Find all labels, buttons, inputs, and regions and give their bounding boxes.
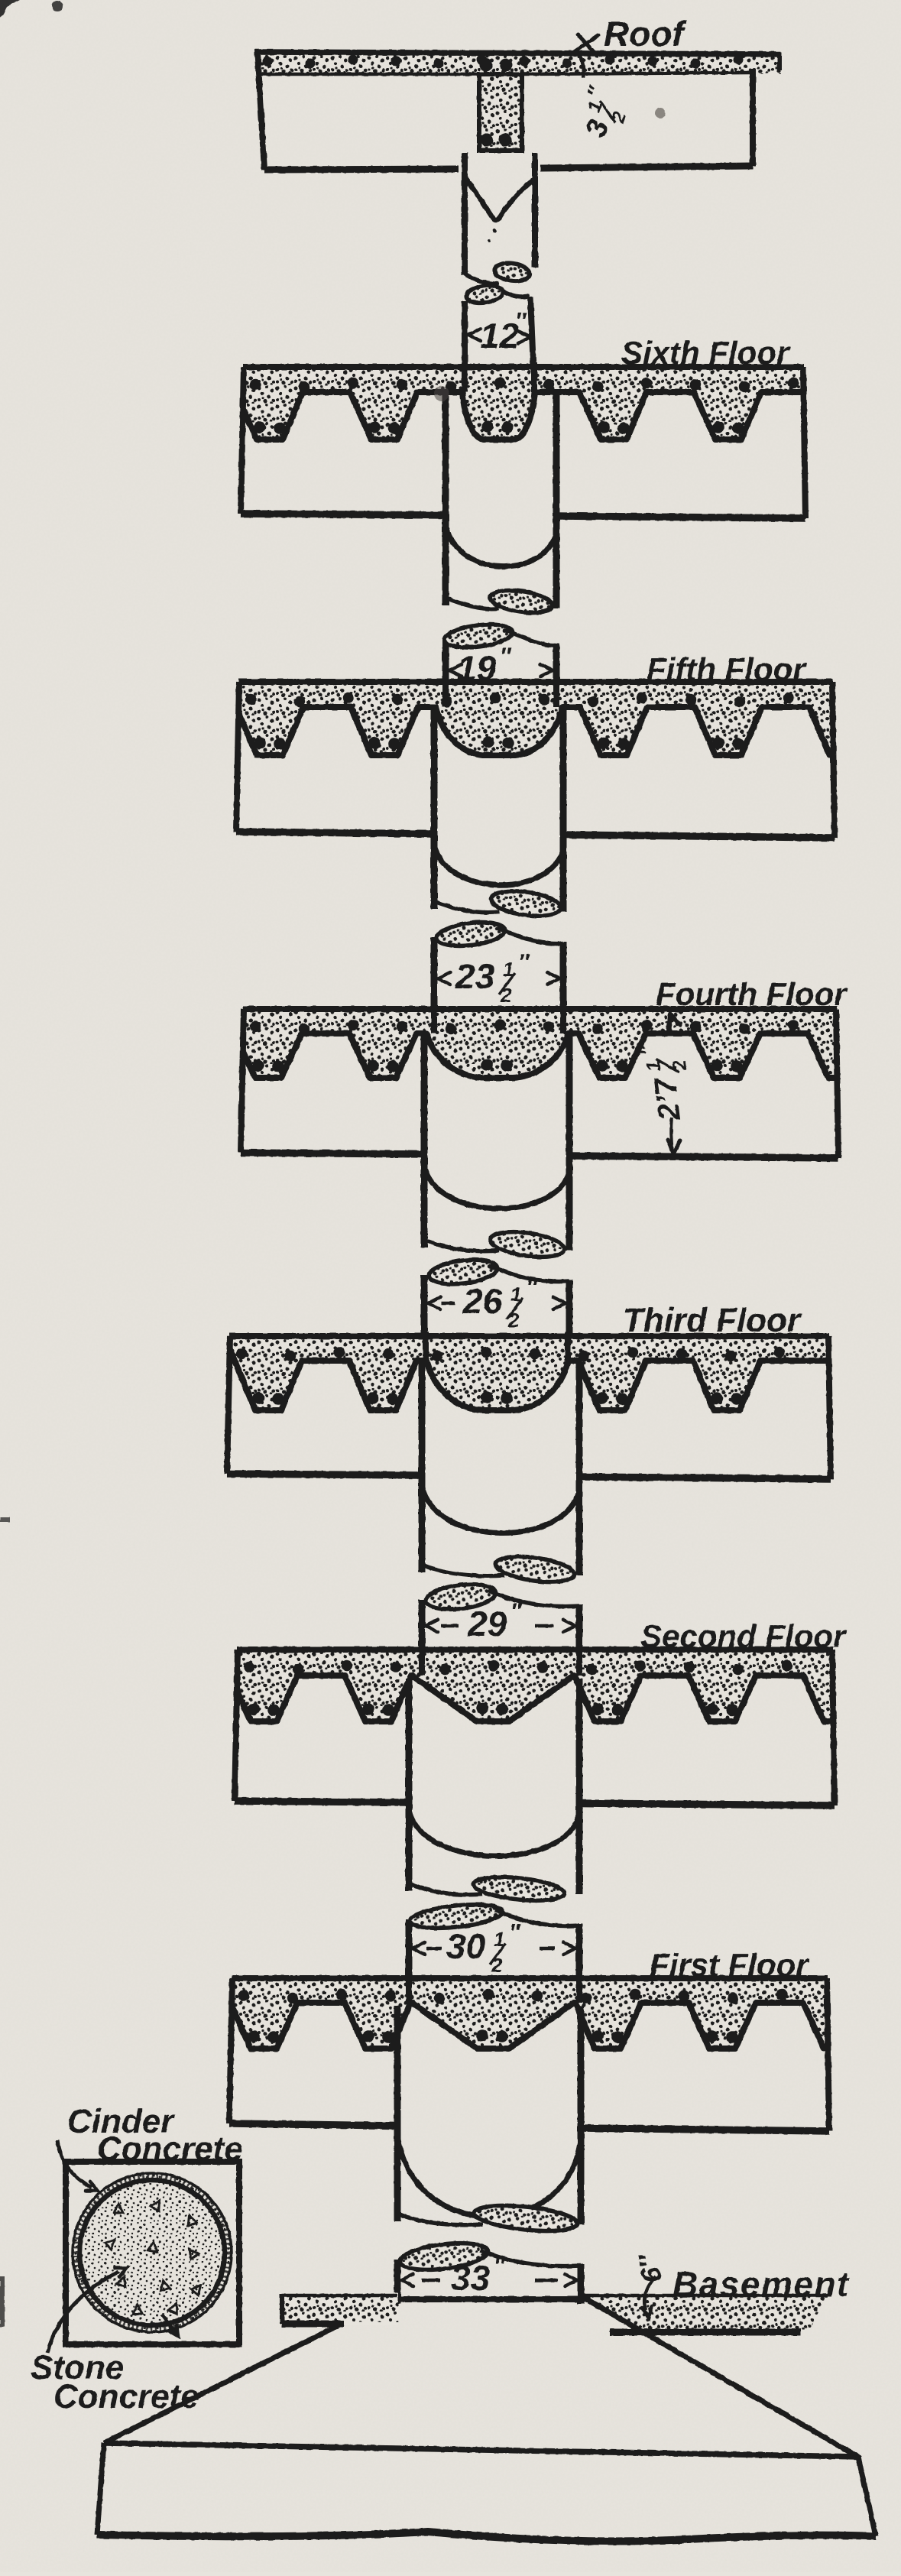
svg-text:″: ″ — [500, 644, 512, 669]
svg-text:Fifth Floor: Fifth Floor — [647, 651, 807, 687]
svg-text:″: ″ — [494, 2253, 506, 2279]
svg-text:″: ″ — [510, 1599, 523, 1624]
svg-text:Concrete: Concrete — [53, 2378, 199, 2415]
svg-text:Sixth Floor: Sixth Floor — [621, 335, 791, 371]
svg-text:″: ″ — [518, 950, 530, 975]
svg-text:2: 2 — [491, 1954, 503, 1977]
svg-text:First Floor: First Floor — [650, 1947, 810, 1983]
svg-text:Fourth Floor: Fourth Floor — [656, 976, 848, 1012]
svg-text:12: 12 — [480, 316, 520, 355]
svg-text:2: 2 — [507, 1309, 520, 1332]
svg-text:″: ″ — [515, 309, 527, 334]
svg-text:″: ″ — [509, 1920, 521, 1945]
svg-text:2: 2 — [500, 984, 512, 1007]
svg-text:23: 23 — [455, 956, 495, 996]
svg-text:26: 26 — [462, 1281, 503, 1321]
svg-text:Basement: Basement — [673, 2264, 850, 2304]
svg-text:Concrete: Concrete — [97, 2130, 243, 2168]
svg-text:29: 29 — [467, 1604, 507, 1643]
svg-text:Third Floor: Third Floor — [623, 1302, 802, 1339]
svg-text:Second Floor: Second Floor — [640, 1618, 848, 1654]
svg-text:Roof: Roof — [604, 14, 687, 54]
svg-text:2’7: 2’7 — [648, 1075, 687, 1123]
svg-text:33: 33 — [451, 2258, 491, 2298]
svg-text:30: 30 — [446, 1926, 486, 1966]
svg-text:″: ″ — [526, 1275, 538, 1300]
